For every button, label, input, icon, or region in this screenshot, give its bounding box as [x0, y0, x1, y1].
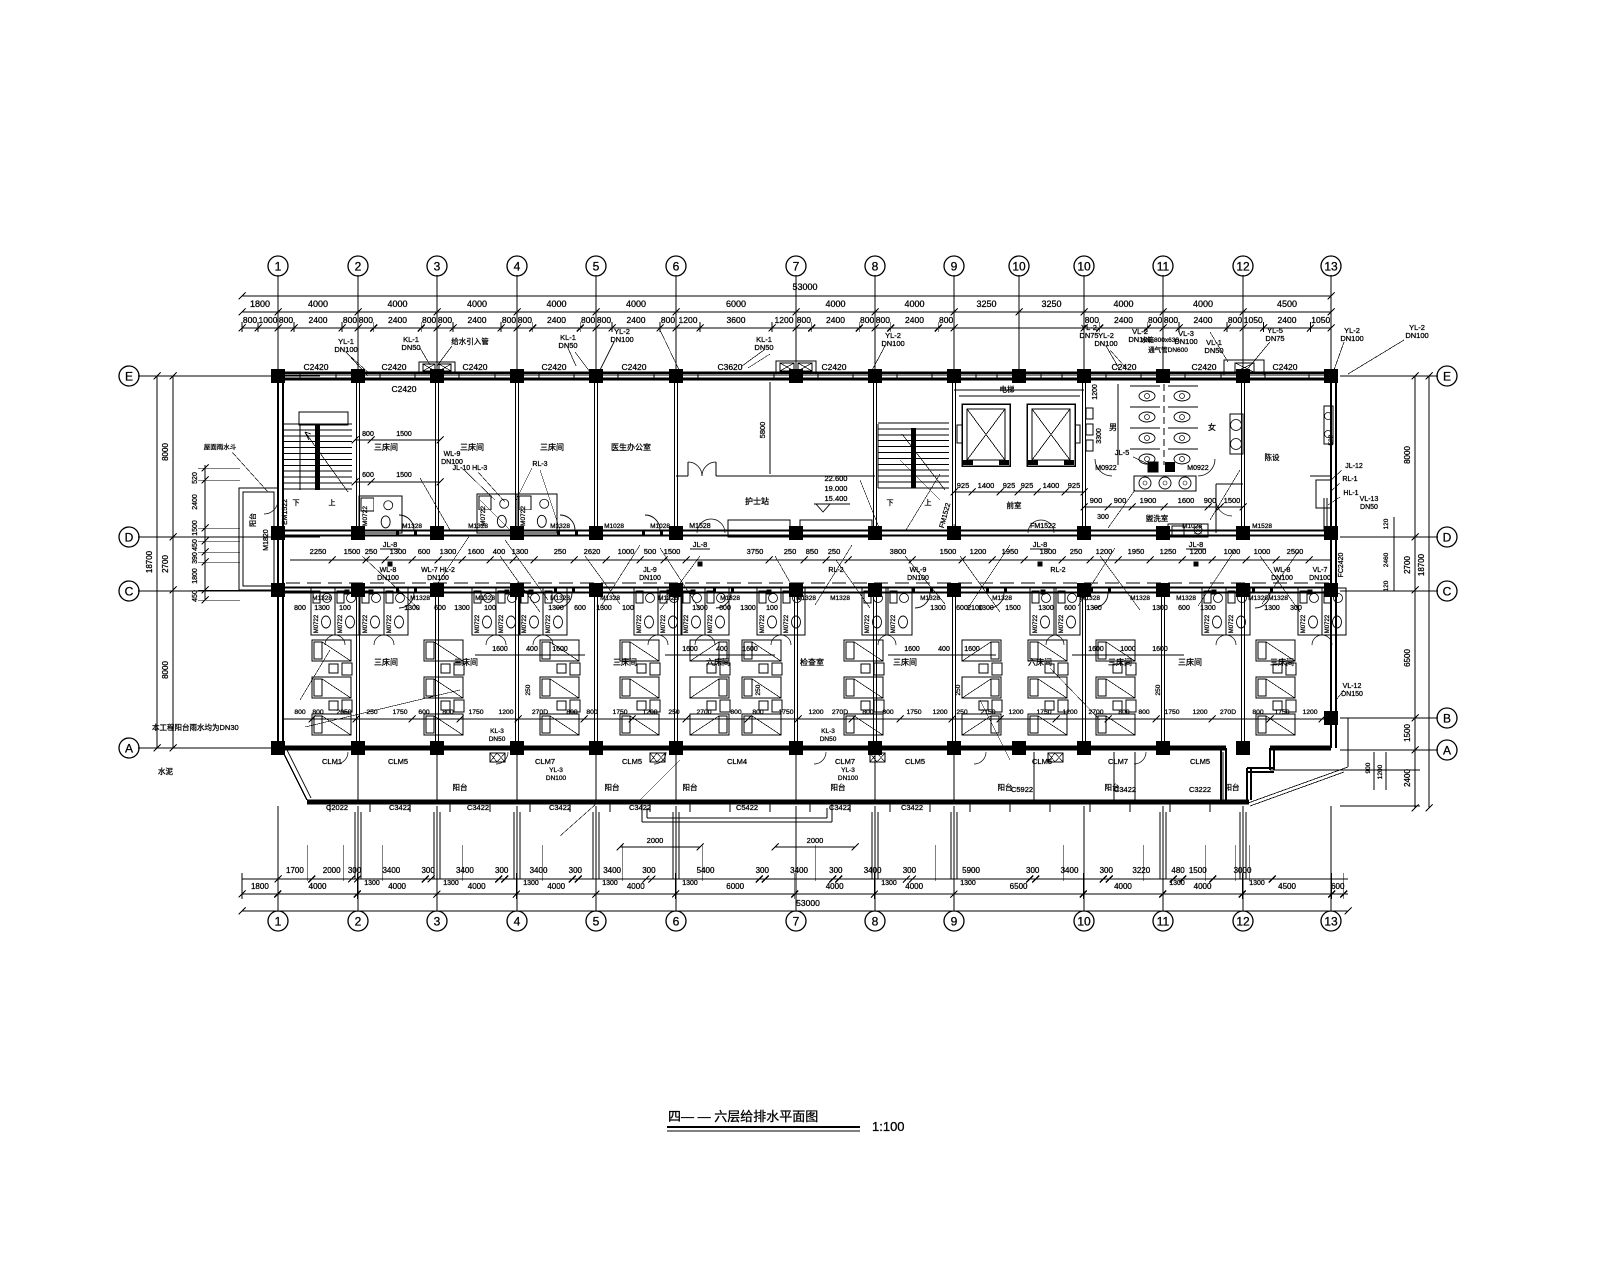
svg-text:2250: 2250	[310, 547, 327, 556]
svg-text:4000: 4000	[468, 882, 486, 891]
svg-text:C2420: C2420	[391, 384, 416, 394]
svg-text:RL-2: RL-2	[1050, 567, 1065, 574]
svg-text:M1328: M1328	[402, 523, 422, 530]
svg-text:3: 3	[434, 914, 441, 928]
svg-text:600: 600	[1331, 882, 1345, 891]
svg-text:CLM7: CLM7	[835, 757, 855, 766]
svg-text:1200: 1200	[808, 709, 823, 716]
svg-text:6000: 6000	[726, 299, 746, 309]
svg-text:阳台: 阳台	[831, 782, 846, 792]
svg-text:2400: 2400	[309, 315, 328, 325]
svg-text:YL-3: YL-3	[841, 767, 855, 774]
svg-text:3400: 3400	[790, 866, 808, 875]
svg-text:DN50: DN50	[1204, 346, 1223, 355]
svg-text:1600: 1600	[904, 646, 920, 653]
svg-text:10: 10	[1012, 259, 1026, 273]
svg-text:DN50: DN50	[820, 736, 837, 743]
svg-text:2620: 2620	[584, 547, 601, 556]
svg-text:300: 300	[642, 866, 656, 875]
svg-text:8: 8	[872, 914, 879, 928]
svg-text:600: 600	[956, 605, 968, 612]
svg-text:1300: 1300	[602, 880, 618, 887]
svg-text:250: 250	[755, 684, 762, 695]
svg-text:1200: 1200	[932, 709, 947, 716]
svg-text:600: 600	[434, 605, 446, 612]
svg-text:800: 800	[502, 315, 516, 325]
svg-text:4000: 4000	[467, 299, 487, 309]
svg-text:250: 250	[956, 709, 968, 716]
svg-text:M0722: M0722	[661, 614, 667, 633]
svg-text:1750: 1750	[1036, 709, 1051, 716]
svg-text:4000: 4000	[627, 882, 645, 891]
svg-text:1600: 1600	[682, 646, 698, 653]
svg-text:800: 800	[1148, 315, 1162, 325]
svg-text:DN75: DN75	[1265, 334, 1284, 343]
svg-text:M0722: M0722	[546, 614, 552, 633]
svg-text:100: 100	[766, 605, 778, 612]
svg-text:M0722: M0722	[784, 614, 790, 633]
svg-text:C3422: C3422	[389, 803, 411, 812]
svg-text:DN100: DN100	[1405, 331, 1428, 340]
svg-text:2500: 2500	[1287, 547, 1304, 556]
svg-text:1950: 1950	[1128, 547, 1145, 556]
svg-text:WL-7 HL-2: WL-7 HL-2	[421, 567, 455, 574]
svg-text:4000: 4000	[1113, 299, 1133, 309]
svg-text:JL-8: JL-8	[383, 540, 398, 549]
svg-text:800: 800	[939, 315, 953, 325]
svg-text:4: 4	[514, 259, 521, 273]
svg-text:1750: 1750	[468, 709, 483, 716]
svg-text:400: 400	[716, 646, 728, 653]
svg-text:三床间: 三床间	[893, 657, 917, 667]
svg-text:1500: 1500	[664, 547, 681, 556]
svg-text:M0722: M0722	[760, 614, 766, 633]
svg-text:1600: 1600	[1152, 646, 1168, 653]
svg-text:800: 800	[566, 709, 578, 716]
svg-text:1300: 1300	[682, 880, 698, 887]
svg-text:1300: 1300	[548, 605, 564, 612]
svg-text:1300: 1300	[692, 605, 708, 612]
svg-text:300: 300	[1100, 866, 1114, 875]
svg-text:DN100: DN100	[427, 575, 449, 582]
svg-text:护士站: 护士站	[745, 496, 769, 506]
svg-text:M0722: M0722	[522, 614, 528, 633]
svg-text:15.400: 15.400	[825, 494, 848, 503]
svg-text:1300: 1300	[1038, 605, 1054, 612]
svg-text:1500: 1500	[1005, 605, 1021, 612]
svg-text:M1328: M1328	[468, 523, 488, 530]
svg-text:KL-3: KL-3	[821, 728, 835, 735]
svg-text:800: 800	[1164, 315, 1178, 325]
svg-text:M1328: M1328	[312, 595, 332, 602]
svg-text:1300: 1300	[440, 547, 457, 556]
svg-text:18700: 18700	[1417, 553, 1426, 576]
svg-text:1600: 1600	[1178, 496, 1195, 505]
svg-text:三床间: 三床间	[540, 442, 564, 452]
svg-text:800: 800	[294, 709, 306, 716]
svg-text:4000: 4000	[626, 299, 646, 309]
svg-text:800: 800	[862, 709, 874, 716]
svg-text:三床间: 三床间	[1178, 657, 1202, 667]
svg-text:2400: 2400	[547, 315, 566, 325]
svg-text:2: 2	[355, 259, 362, 273]
svg-text:1000: 1000	[1254, 547, 1271, 556]
svg-text:屋面雨水斗: 屋面雨水斗	[204, 442, 237, 451]
svg-text:M1028: M1028	[1182, 523, 1202, 530]
svg-text:800: 800	[1228, 315, 1242, 325]
svg-text:4000: 4000	[308, 299, 328, 309]
svg-text:WL-9: WL-9	[444, 451, 461, 458]
svg-text:M1328: M1328	[1248, 595, 1268, 602]
svg-text:100: 100	[484, 605, 496, 612]
svg-text:300: 300	[1097, 514, 1109, 521]
svg-text:1750: 1750	[778, 709, 793, 716]
svg-text:300: 300	[1026, 866, 1040, 875]
svg-text:800: 800	[882, 709, 894, 716]
svg-text:4000: 4000	[546, 299, 566, 309]
svg-text:4000: 4000	[547, 882, 565, 891]
svg-text:900: 900	[1090, 496, 1103, 505]
svg-text:三床间: 三床间	[1270, 657, 1294, 667]
svg-text:5400: 5400	[697, 866, 715, 875]
svg-text:女: 女	[1208, 422, 1216, 432]
svg-text:1: 1	[275, 259, 282, 273]
svg-text:JL-8: JL-8	[1033, 540, 1048, 549]
svg-text:800: 800	[597, 315, 611, 325]
svg-text:800: 800	[359, 315, 373, 325]
svg-text:M0922: M0922	[1187, 465, 1209, 472]
svg-text:DN100: DN100	[334, 345, 357, 354]
svg-text:2150: 2150	[980, 709, 995, 716]
svg-text:5: 5	[593, 259, 600, 273]
svg-text:800: 800	[661, 315, 675, 325]
svg-text:3400: 3400	[530, 866, 548, 875]
svg-text:1500: 1500	[192, 520, 199, 536]
svg-text:A: A	[125, 741, 133, 755]
svg-text:13: 13	[1324, 914, 1338, 928]
svg-text:250: 250	[955, 684, 962, 695]
svg-text:M0722: M0722	[891, 614, 897, 633]
svg-text:VL-7: VL-7	[1313, 567, 1328, 574]
svg-text:2400: 2400	[627, 315, 646, 325]
svg-text:JL-8: JL-8	[1189, 540, 1204, 549]
svg-text:10: 10	[1077, 259, 1091, 273]
svg-text:3400: 3400	[603, 866, 621, 875]
svg-text:600: 600	[574, 605, 586, 612]
svg-text:DN100: DN100	[838, 775, 859, 782]
svg-text:1200: 1200	[679, 315, 698, 325]
svg-text:1300: 1300	[1169, 880, 1185, 887]
svg-text:1200: 1200	[1377, 764, 1384, 779]
svg-text:C2420: C2420	[1272, 362, 1297, 372]
svg-text:5900: 5900	[962, 866, 980, 875]
svg-text:M1328: M1328	[550, 523, 570, 530]
svg-text:2400: 2400	[388, 315, 407, 325]
svg-text:7: 7	[793, 259, 800, 273]
svg-text:1750: 1750	[906, 709, 921, 716]
svg-text:B: B	[1443, 711, 1451, 725]
svg-text:4000: 4000	[1193, 299, 1213, 309]
svg-text:2400: 2400	[468, 315, 487, 325]
svg-text:1200: 1200	[1192, 709, 1207, 716]
svg-text:2050: 2050	[336, 709, 351, 716]
svg-text:1600: 1600	[964, 646, 980, 653]
svg-text:900: 900	[1204, 496, 1217, 505]
svg-text:390: 390	[192, 552, 199, 564]
svg-text:M0722: M0722	[1059, 614, 1065, 633]
svg-text:HL-1: HL-1	[1343, 490, 1358, 497]
svg-text:1300: 1300	[978, 605, 994, 612]
svg-text:三床间: 三床间	[374, 657, 398, 667]
svg-text:800: 800	[752, 709, 764, 716]
svg-text:4000: 4000	[825, 299, 845, 309]
svg-text:800: 800	[279, 315, 293, 325]
svg-text:CLM4: CLM4	[727, 757, 747, 766]
svg-text:800: 800	[730, 709, 742, 716]
svg-text:M1028: M1028	[650, 523, 670, 530]
svg-text:120: 120	[1383, 580, 1390, 591]
svg-text:1300: 1300	[443, 880, 459, 887]
svg-text:800: 800	[518, 315, 532, 325]
svg-text:M1328: M1328	[1176, 595, 1196, 602]
svg-text:100: 100	[622, 605, 634, 612]
svg-text:800: 800	[1252, 709, 1264, 716]
svg-text:1600: 1600	[742, 646, 758, 653]
svg-text:5800: 5800	[758, 422, 767, 439]
svg-text:1300: 1300	[960, 880, 976, 887]
svg-text:300: 300	[421, 866, 435, 875]
svg-text:1300: 1300	[512, 547, 529, 556]
svg-text:4000: 4000	[309, 882, 327, 891]
svg-text:2400: 2400	[1194, 315, 1213, 325]
svg-text:8000: 8000	[1403, 446, 1412, 464]
svg-text:1050: 1050	[1244, 315, 1263, 325]
svg-text:M1328: M1328	[550, 595, 570, 602]
svg-text:C3222: C3222	[1189, 785, 1211, 794]
svg-text:9: 9	[951, 914, 958, 928]
svg-text:4: 4	[514, 914, 521, 928]
svg-text:JL-10 HL-3: JL-10 HL-3	[453, 465, 488, 472]
svg-text:DN50: DN50	[1360, 504, 1378, 511]
svg-text:3220: 3220	[1132, 866, 1150, 875]
svg-text:2700: 2700	[696, 709, 711, 716]
svg-text:1250: 1250	[1160, 547, 1177, 556]
svg-text:3800: 3800	[890, 547, 907, 556]
svg-text:1750: 1750	[612, 709, 627, 716]
svg-text:M0722: M0722	[684, 614, 690, 633]
svg-text:WL-8: WL-8	[380, 567, 397, 574]
svg-text:A: A	[1443, 743, 1451, 757]
svg-text:11: 11	[1157, 914, 1170, 928]
svg-text:1600: 1600	[492, 646, 508, 653]
svg-text:C3422: C3422	[467, 803, 489, 812]
svg-text:800: 800	[586, 709, 598, 716]
svg-text:C5422: C5422	[736, 803, 758, 812]
svg-text:450: 450	[192, 590, 199, 602]
svg-text:2400: 2400	[905, 315, 924, 325]
svg-text:10: 10	[1077, 914, 1091, 928]
svg-text:2400: 2400	[1278, 315, 1297, 325]
svg-text:250: 250	[365, 547, 378, 556]
svg-text:3300: 3300	[1096, 428, 1103, 444]
svg-text:2000: 2000	[647, 836, 664, 845]
svg-text:三床间: 三床间	[613, 657, 637, 667]
svg-text:1500: 1500	[1224, 496, 1241, 505]
svg-text:600: 600	[362, 472, 374, 479]
svg-text:300: 300	[903, 866, 917, 875]
svg-text:4500: 4500	[1278, 882, 1296, 891]
svg-text:300: 300	[829, 866, 843, 875]
svg-text:M0722: M0722	[499, 614, 505, 633]
svg-text:1200: 1200	[1092, 384, 1099, 400]
svg-text:4000: 4000	[387, 299, 407, 309]
svg-text:3600: 3600	[727, 315, 746, 325]
svg-text:100: 100	[339, 605, 351, 612]
svg-text:M1328: M1328	[1130, 595, 1150, 602]
svg-text:M1328: M1328	[475, 595, 495, 602]
svg-text:阳台: 阳台	[605, 782, 620, 792]
svg-text:300: 300	[348, 866, 362, 875]
svg-text:前室: 前室	[1007, 500, 1022, 510]
svg-text:3: 3	[434, 259, 441, 273]
svg-text:M1328: M1328	[658, 595, 678, 602]
svg-text:C3422: C3422	[829, 803, 851, 812]
svg-text:522: 522	[1328, 434, 1335, 445]
svg-text:给水引入管: 给水引入管	[451, 336, 489, 346]
svg-text:DN100: DN100	[1174, 337, 1197, 346]
svg-text:3400: 3400	[1061, 866, 1079, 875]
svg-text:13: 13	[1324, 259, 1338, 273]
svg-text:2400: 2400	[1403, 769, 1412, 787]
svg-text:医生办公室: 医生办公室	[611, 442, 651, 452]
svg-text:C3422: C3422	[901, 803, 923, 812]
svg-text:CLM7: CLM7	[535, 757, 555, 766]
svg-text:M0722: M0722	[520, 506, 527, 526]
svg-text:800: 800	[1118, 709, 1130, 716]
svg-text:CLM5: CLM5	[1032, 757, 1052, 766]
svg-text:2400: 2400	[1114, 315, 1133, 325]
svg-text:1750: 1750	[1164, 709, 1179, 716]
svg-text:C3422: C3422	[549, 803, 571, 812]
svg-text:水泥: 水泥	[158, 766, 173, 776]
svg-text:阳台: 阳台	[1225, 782, 1240, 792]
svg-text:600: 600	[1178, 605, 1190, 612]
svg-text:C2420: C2420	[303, 362, 328, 372]
svg-text:上: 上	[329, 498, 336, 507]
svg-text:YL-3: YL-3	[549, 767, 563, 774]
svg-text:5: 5	[593, 914, 600, 928]
svg-text:阳台: 阳台	[453, 782, 468, 792]
svg-text:VL-13: VL-13	[1360, 496, 1379, 503]
svg-text:M0722: M0722	[475, 614, 481, 633]
svg-text:500: 500	[644, 547, 657, 556]
svg-text:M0722: M0722	[387, 614, 393, 633]
svg-text:2: 2	[355, 914, 362, 928]
svg-text:300: 300	[569, 866, 583, 875]
svg-text:DN50: DN50	[489, 736, 506, 743]
svg-text:1200: 1200	[970, 547, 987, 556]
svg-text:M1528: M1528	[1252, 523, 1272, 530]
svg-text:JL-12: JL-12	[1345, 463, 1363, 470]
svg-text:250: 250	[554, 547, 567, 556]
svg-text:4000: 4000	[826, 882, 844, 891]
svg-text:1050: 1050	[1311, 315, 1330, 325]
svg-text:1800: 1800	[192, 568, 199, 584]
svg-text:800: 800	[422, 315, 436, 325]
svg-text:300: 300	[1290, 605, 1302, 612]
svg-text:800: 800	[860, 315, 874, 325]
svg-text:KL-3: KL-3	[490, 728, 504, 735]
svg-text:C3422: C3422	[629, 803, 651, 812]
svg-text:DN100: DN100	[639, 575, 661, 582]
svg-text:DN50: DN50	[754, 343, 773, 352]
svg-text:1500: 1500	[1189, 866, 1207, 875]
svg-text:1300: 1300	[881, 880, 897, 887]
svg-text:DN100: DN100	[377, 575, 399, 582]
svg-text:电梯: 电梯	[1000, 384, 1015, 394]
svg-text:WL-8: WL-8	[1274, 567, 1291, 574]
svg-text:M0922: M0922	[1095, 465, 1117, 472]
svg-text:1950: 1950	[1002, 547, 1019, 556]
svg-text:通气管DN600: 通气管DN600	[1148, 345, 1188, 354]
svg-text:900: 900	[1365, 762, 1372, 773]
svg-text:C2420: C2420	[821, 362, 846, 372]
svg-text:250: 250	[1155, 684, 1162, 695]
svg-text:CLM5: CLM5	[1190, 757, 1210, 766]
svg-text:2000: 2000	[807, 836, 824, 845]
svg-text:1300: 1300	[523, 880, 539, 887]
svg-text:450: 450	[192, 539, 199, 551]
svg-text:1800: 1800	[250, 299, 270, 309]
svg-text:阳台: 阳台	[683, 782, 698, 792]
svg-text:M0722: M0722	[338, 614, 344, 633]
svg-text:盥洗室: 盥洗室	[1146, 513, 1169, 523]
svg-text:7: 7	[793, 914, 800, 928]
svg-text:270D: 270D	[1220, 709, 1236, 716]
svg-text:1300: 1300	[364, 880, 380, 887]
svg-text:C3620: C3620	[717, 362, 742, 372]
svg-text:925: 925	[1021, 481, 1034, 490]
svg-text:250: 250	[784, 547, 797, 556]
svg-text:2000: 2000	[323, 866, 341, 875]
svg-text:JL-5: JL-5	[1115, 448, 1130, 457]
svg-text:250: 250	[668, 709, 680, 716]
svg-text:CLM1: CLM1	[322, 757, 342, 766]
svg-text:1600: 1600	[552, 646, 568, 653]
svg-text:M0722: M0722	[1033, 614, 1039, 633]
svg-text:1200: 1200	[1096, 547, 1113, 556]
svg-text:800: 800	[442, 709, 454, 716]
svg-text:C2420: C2420	[621, 362, 646, 372]
svg-text:M0722: M0722	[1205, 614, 1211, 633]
svg-text:2400: 2400	[192, 494, 199, 510]
svg-text:检查室: 检查室	[800, 657, 824, 667]
svg-text:925: 925	[1003, 481, 1016, 490]
svg-text:下: 下	[887, 499, 894, 507]
svg-text:上: 上	[925, 498, 932, 507]
svg-text:C2420: C2420	[462, 362, 487, 372]
svg-text:6: 6	[673, 914, 680, 928]
svg-text:DN100: DN100	[546, 775, 567, 782]
svg-text:400: 400	[493, 547, 506, 556]
svg-text:1200: 1200	[1008, 709, 1023, 716]
svg-text:C2420: C2420	[381, 362, 406, 372]
svg-text:600: 600	[1064, 605, 1076, 612]
svg-text:8: 8	[872, 259, 879, 273]
svg-text:800: 800	[581, 315, 595, 325]
svg-text:22.600: 22.600	[825, 474, 848, 483]
svg-text:M0722: M0722	[1301, 614, 1307, 633]
